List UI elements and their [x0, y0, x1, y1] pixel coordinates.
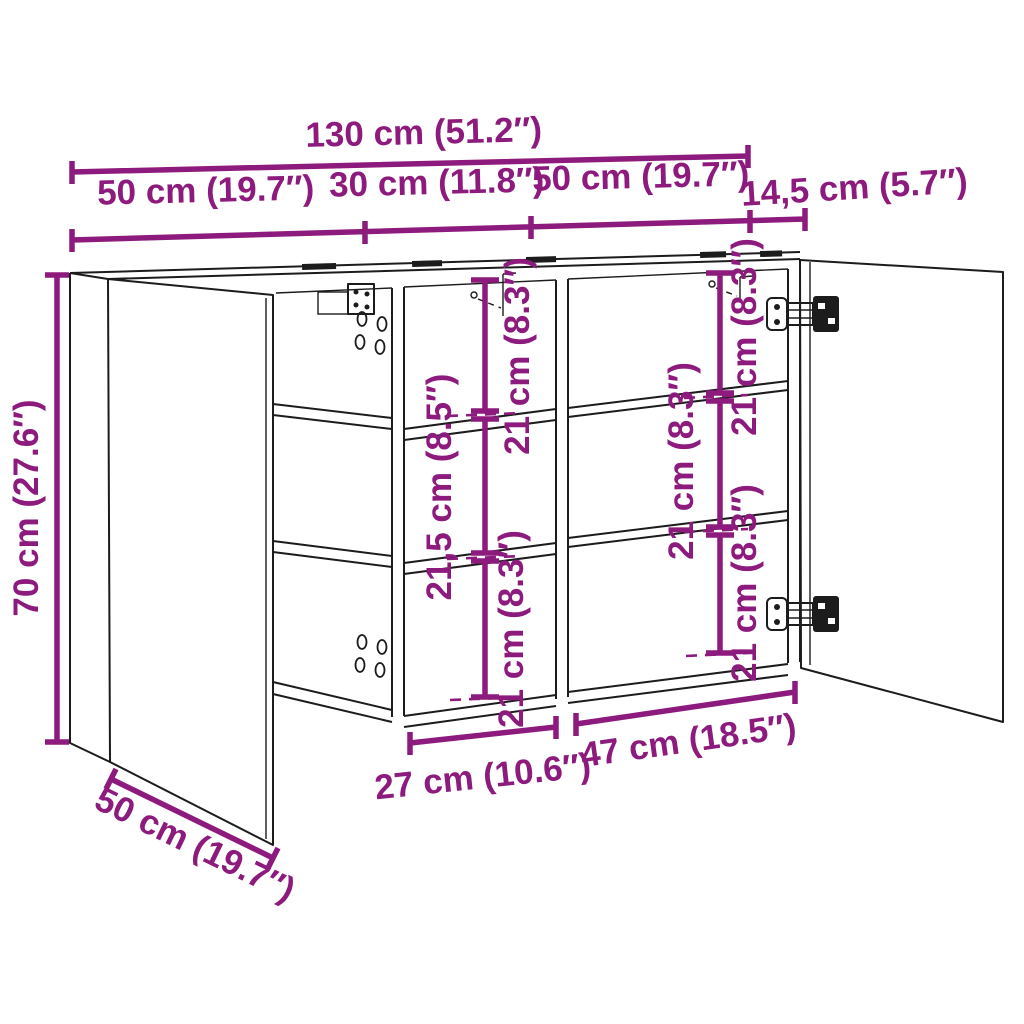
dim-total-width-label: 130 cm (51.2″) — [305, 110, 543, 155]
dim-height-label: 70 cm (27.6″) — [7, 399, 46, 616]
shelf-left-upper — [273, 404, 392, 429]
dim-chain-right: 21 cm (8.3″) 21 cm (8.3″) 21 cm (8.3″) — [662, 238, 764, 682]
dim-mid-center-label: 21,5 cm (8.5″) — [420, 374, 459, 601]
dim-height: 70 cm (27.6″) — [7, 275, 69, 742]
dim-right-bottom-label: 21 cm (8.3″) — [725, 484, 764, 682]
shelf-pin-holes-bottom — [356, 635, 387, 677]
dim-right-center-label: 21 cm (8.3″) — [662, 362, 701, 560]
left-door — [108, 279, 273, 845]
bottom-left-section — [273, 682, 392, 722]
left-side-panel — [70, 273, 110, 762]
divider-right — [556, 279, 568, 699]
divider-left — [392, 287, 404, 717]
dim-mid-top-label: 21 cm (8.3″) — [498, 257, 537, 455]
dim-mid-bottom-label: 21 cm (8.3″) — [492, 530, 531, 728]
cabinet-dimension-diagram: 130 cm (51.2″) 50 cm (19.7″) 30 cm (11.8… — [0, 0, 1024, 1024]
dim-depth-label: 14,5 cm (5.7″) — [740, 161, 969, 214]
dim-left-section-label: 50 cm (19.7″) — [97, 168, 315, 212]
shelf-pin-holes-top — [356, 312, 387, 354]
dim-bottom-middle: 27 cm (10.6″) — [373, 716, 593, 807]
dim-chain-middle: 21 cm (8.3″) 21,5 cm (8.5″) 21 cm (8.3″) — [420, 257, 537, 728]
dim-bottom-middle-label: 27 cm (10.6″) — [373, 746, 593, 807]
shelf-left-lower — [273, 541, 392, 567]
dim-bottom-right: 47 cm (18.5″) — [576, 681, 799, 775]
dim-right-section-label: 50 cm (19.7″) — [532, 154, 750, 198]
dim-middle-section-label: 30 cm (11.8″) — [329, 160, 545, 204]
dim-right-top-label: 21 cm (8.3″) — [725, 238, 764, 436]
top-left-edge — [70, 273, 108, 279]
